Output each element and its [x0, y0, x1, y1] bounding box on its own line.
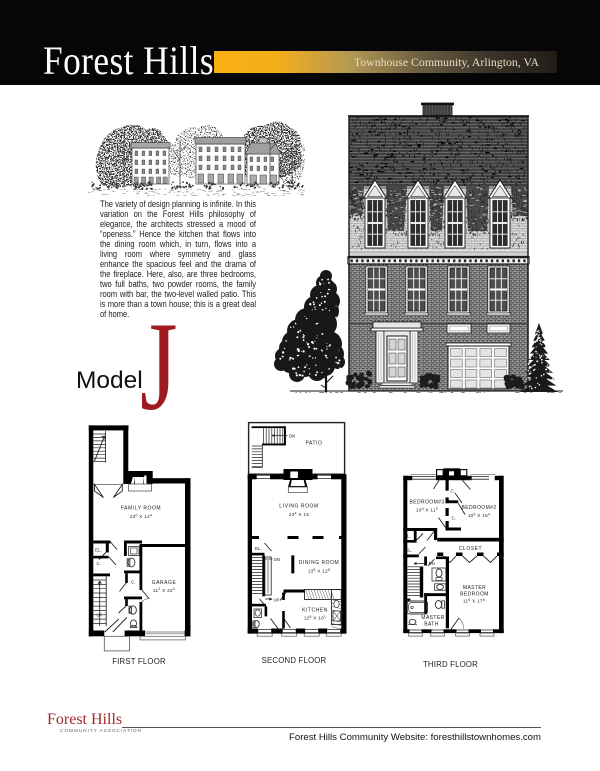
svg-text:135 X 125: 135 X 125 — [308, 568, 330, 574]
svg-text:105 X 154: 105 X 154 — [468, 512, 490, 518]
svg-text:DN: DN — [274, 557, 280, 562]
svg-text:KITCHEN: KITCHEN — [302, 608, 328, 614]
svg-text:C.: C. — [451, 489, 455, 494]
svg-text:BEDROOM: BEDROOM — [460, 592, 489, 598]
svg-text:EL.: EL. — [406, 548, 413, 553]
svg-text:GARAGE: GARAGE — [152, 580, 177, 586]
svg-text:BEDROOM#2: BEDROOM#2 — [462, 505, 497, 511]
svg-text:C.: C. — [97, 561, 101, 566]
svg-text:L.: L. — [407, 534, 411, 539]
svg-text:116 X 176: 116 X 176 — [463, 598, 485, 604]
svg-text:125 X 101: 125 X 101 — [304, 615, 326, 621]
svg-text:BATH: BATH — [424, 621, 439, 627]
svg-text:112 X 224: 112 X 224 — [153, 587, 175, 593]
svg-text:PATIO: PATIO — [305, 441, 322, 447]
svg-text:MASTER: MASTER — [421, 615, 444, 621]
svg-text:C.: C. — [131, 580, 135, 585]
svg-text:FAMILY ROOM: FAMILY ROOM — [121, 506, 161, 512]
svg-text:234 X 15: 234 X 15 — [289, 512, 309, 518]
svg-text:UP: UP — [97, 613, 103, 618]
svg-text:CLOSET: CLOSET — [459, 546, 482, 552]
svg-text:BEDROOM#3: BEDROOM#3 — [410, 500, 445, 506]
svg-text:EL.: EL. — [95, 548, 102, 553]
svg-text:EL.: EL. — [255, 546, 262, 551]
svg-text:LIVING ROOM: LIVING ROOM — [279, 504, 318, 510]
svg-text:103 X 113: 103 X 113 — [416, 507, 438, 513]
svg-text:DINING ROOM: DINING ROOM — [299, 560, 340, 566]
svg-text:MASTER: MASTER — [463, 585, 486, 591]
svg-text:DN: DN — [289, 434, 295, 439]
svg-text:C.: C. — [452, 516, 456, 521]
svg-text:230 X 144: 230 X 144 — [130, 513, 152, 519]
svg-text:UP: UP — [274, 598, 280, 603]
